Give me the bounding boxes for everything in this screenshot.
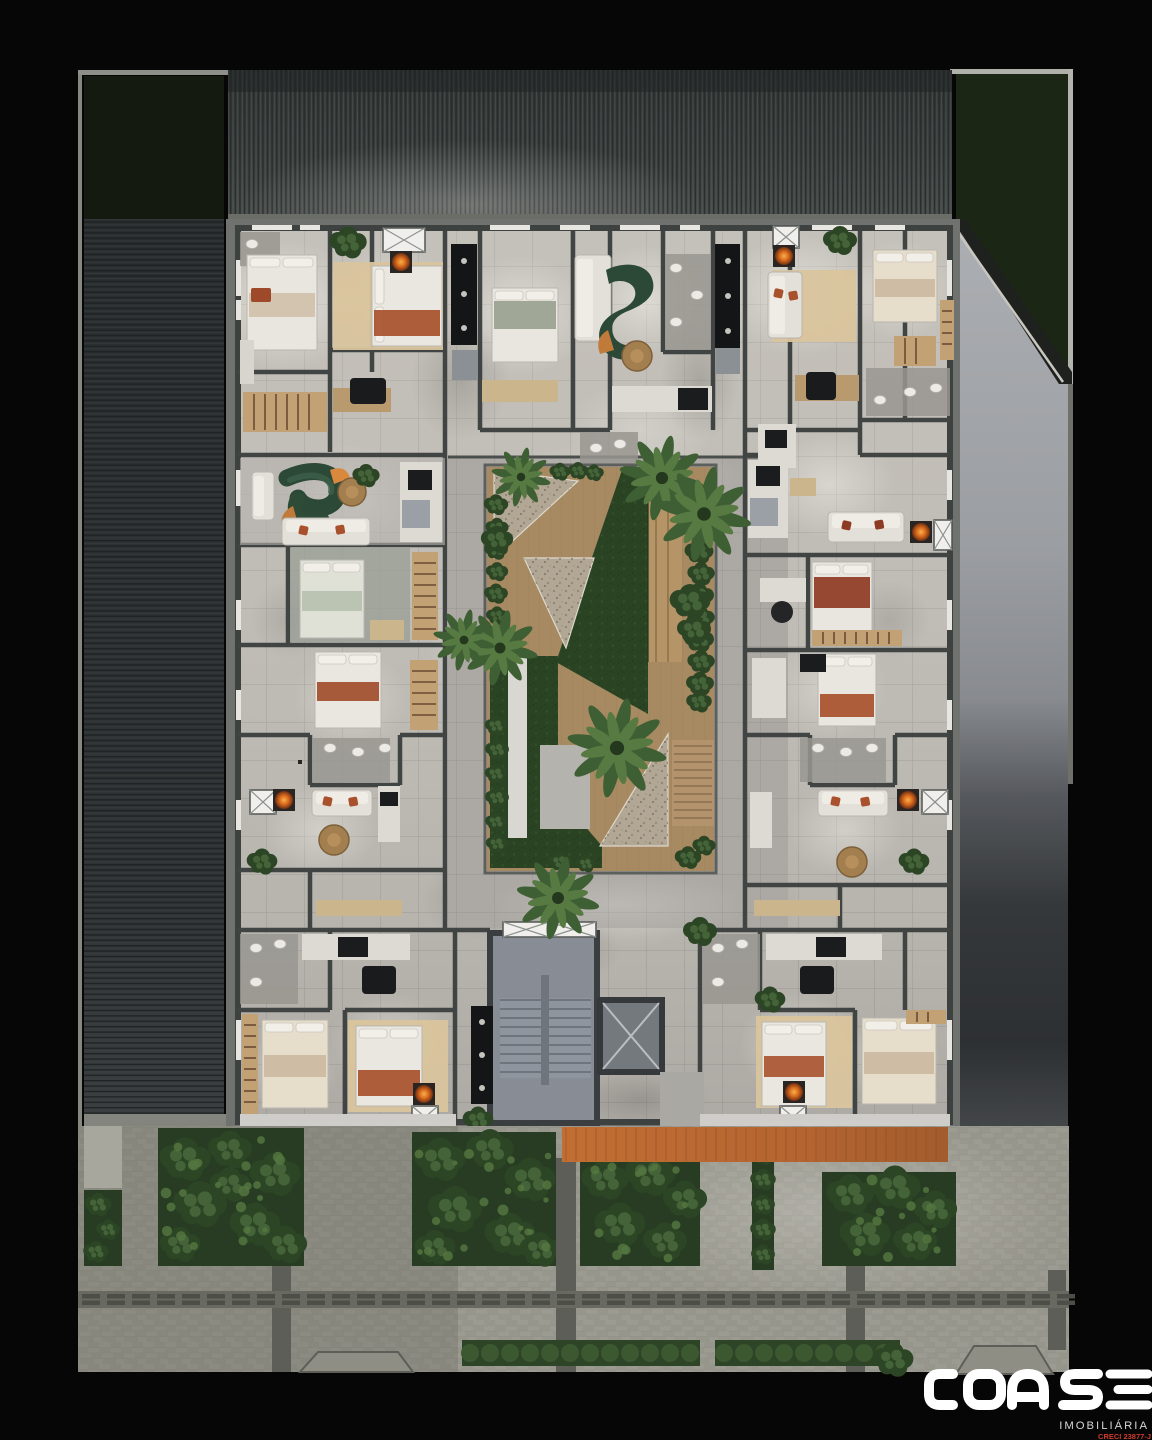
svg-text:IMOBILIÁRIA: IMOBILIÁRIA bbox=[1059, 1419, 1149, 1432]
svg-text:CRECI 23877-J: CRECI 23877-J bbox=[1098, 1432, 1151, 1440]
